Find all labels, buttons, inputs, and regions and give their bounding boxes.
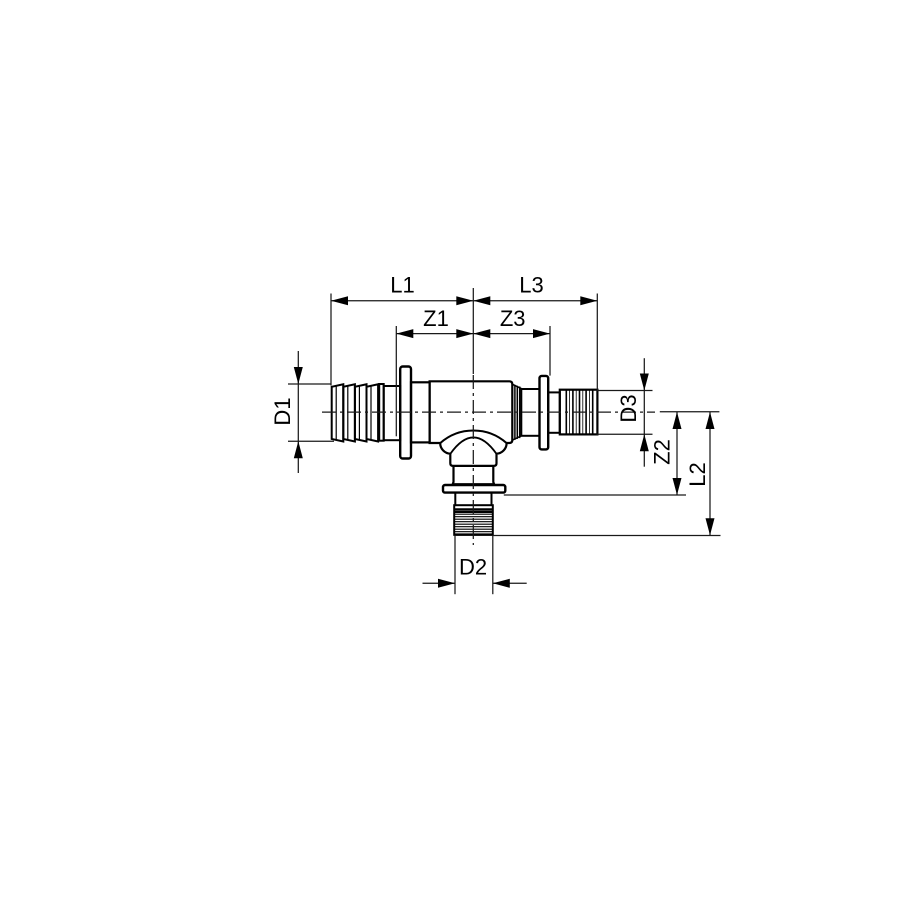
svg-text:L1: L1 bbox=[390, 272, 414, 297]
svg-text:D2: D2 bbox=[459, 555, 487, 580]
svg-text:Z3: Z3 bbox=[500, 306, 526, 331]
svg-text:L2: L2 bbox=[685, 462, 710, 486]
svg-text:D1: D1 bbox=[270, 397, 295, 425]
svg-text:Z1: Z1 bbox=[423, 306, 449, 331]
svg-text:Z2: Z2 bbox=[649, 439, 674, 465]
svg-text:L3: L3 bbox=[519, 272, 543, 297]
svg-text:D3: D3 bbox=[616, 394, 641, 422]
